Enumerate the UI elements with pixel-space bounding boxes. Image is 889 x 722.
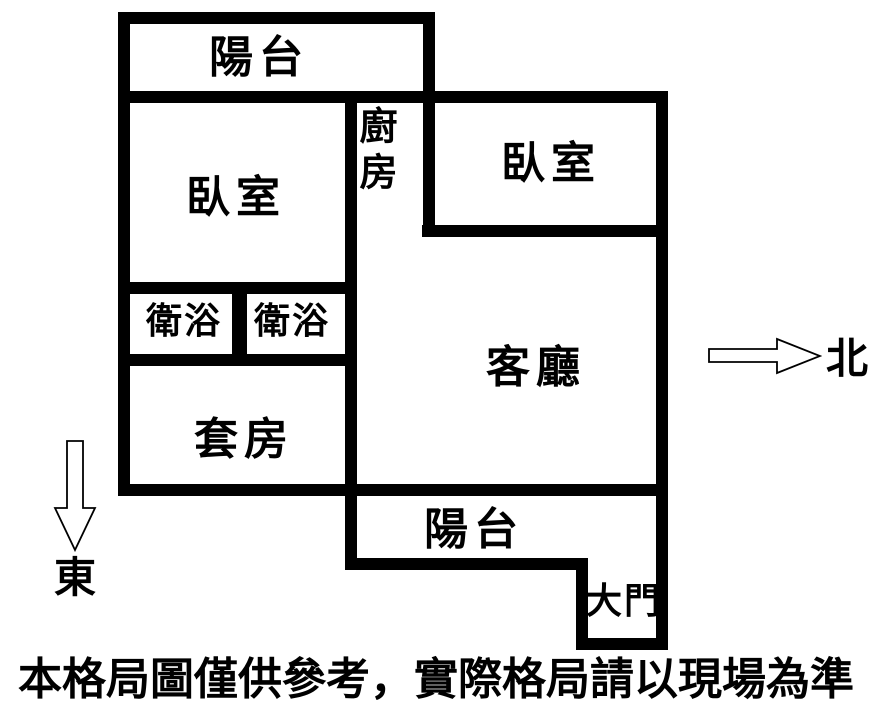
disclaimer-text: 本格局圖僅供參考，實際格局請以現場為準 (18, 655, 854, 706)
east-label: 東 (54, 557, 96, 599)
suite-label: 套房 (188, 418, 294, 462)
north-arrow-icon (707, 336, 822, 376)
wall-top-outer (118, 12, 435, 24)
wall-living-suite-bottom (118, 484, 668, 496)
bedroom-left-label: 臥室 (180, 176, 286, 220)
bathroom-left-label: 衛浴 (144, 303, 222, 339)
balcony-bottom-label: 陽台 (418, 508, 524, 552)
main-door-label: 大門 (584, 583, 662, 619)
wall-balcony-bottom-bottom (345, 558, 588, 570)
bedroom-right-label: 臥室 (495, 142, 601, 186)
kitchen-label: 廚房 (355, 106, 393, 198)
east-arrow-icon (53, 440, 97, 552)
wall-left-outer (118, 12, 130, 496)
wall-door-bottom (576, 638, 668, 650)
living-room-label: 客廳 (480, 346, 586, 390)
wall-balcony-top-bottom (118, 91, 668, 103)
wall-bathroom-divider (232, 282, 247, 366)
floor-plan: 陽台 臥室 廚房 臥室 衛浴 衛浴 客廳 套房 陽台 大門 北 東 本格局圖僅供… (0, 0, 889, 722)
north-label: 北 (826, 338, 868, 380)
wall-right-outer (656, 91, 668, 650)
bathroom-right-label: 衛浴 (252, 303, 330, 339)
balcony-top-label: 陽台 (203, 36, 309, 80)
wall-kitchen-right (423, 12, 435, 237)
wall-bedroom-right-bottom (422, 225, 668, 237)
